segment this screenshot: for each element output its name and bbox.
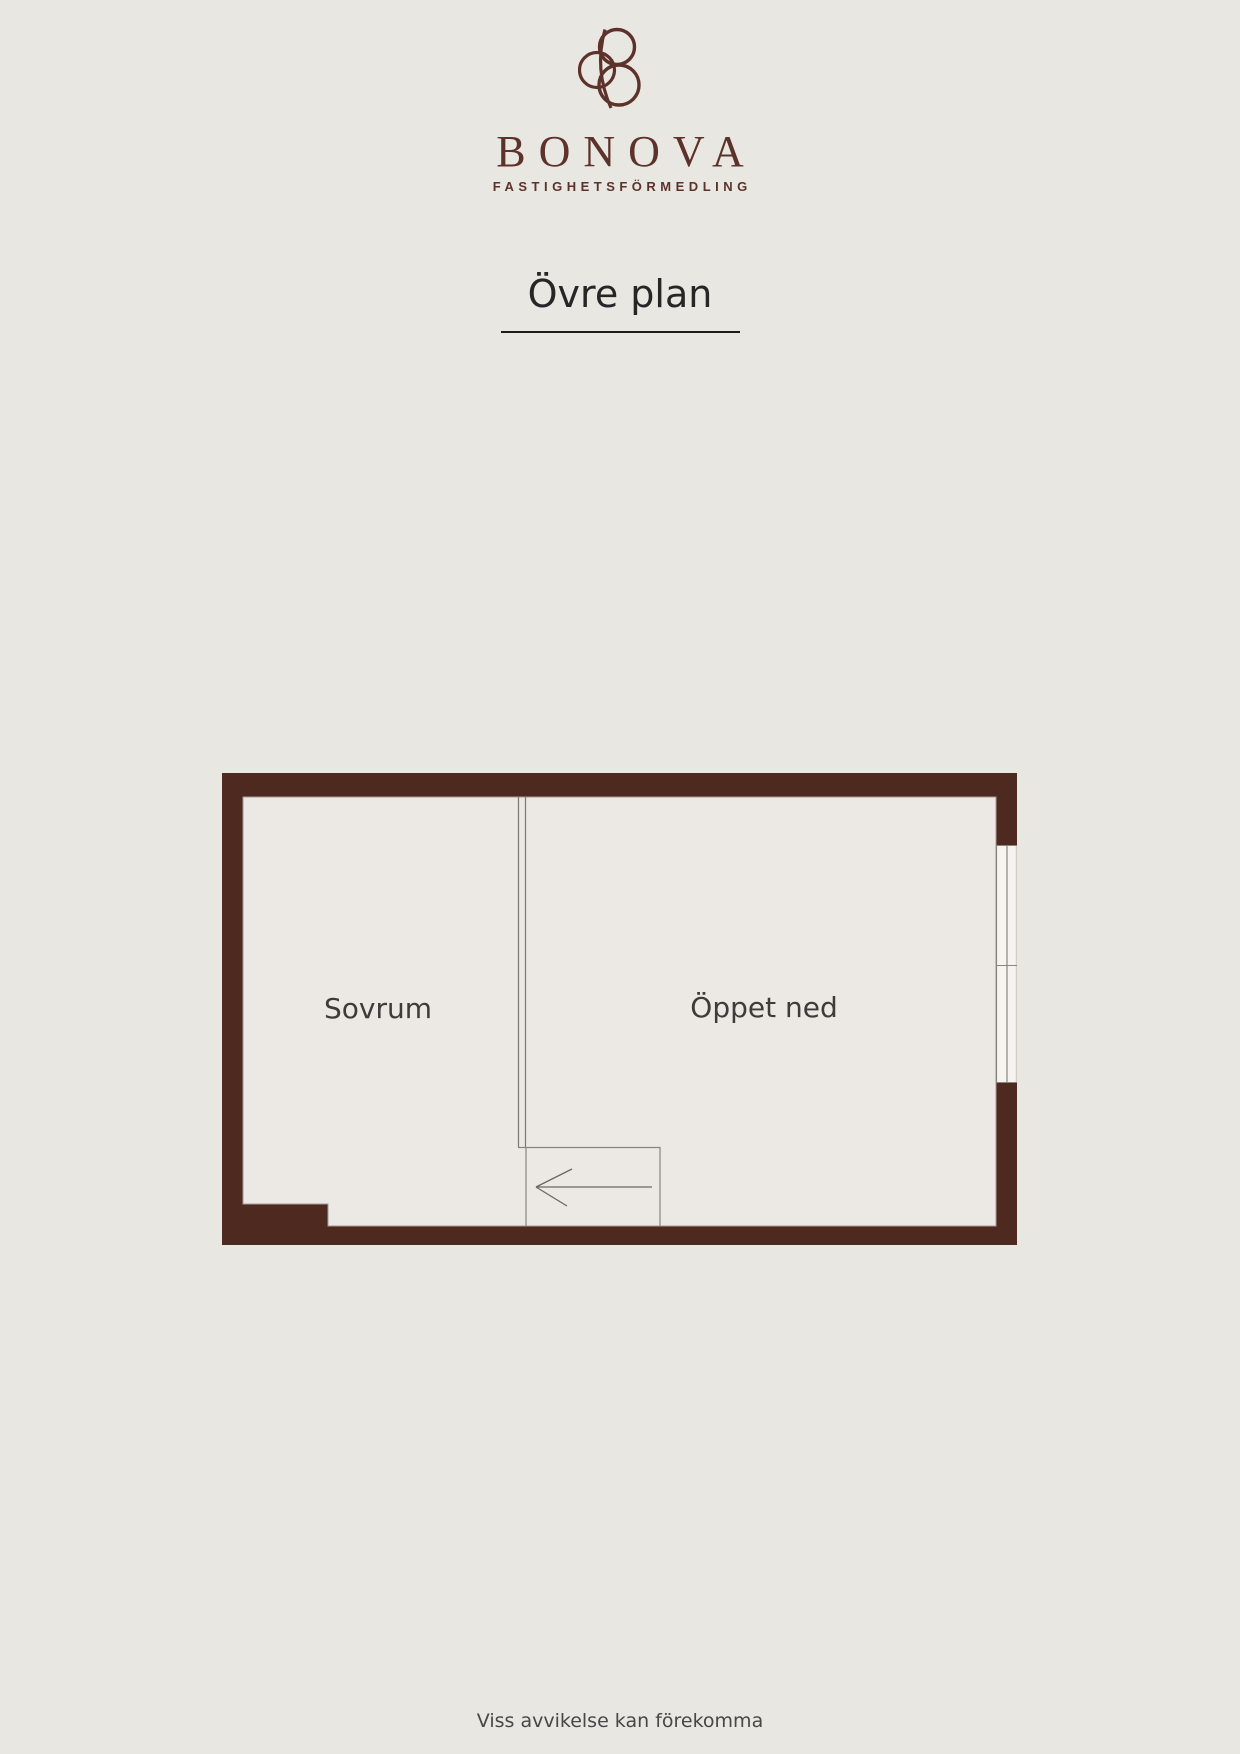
footer-disclaimer: Viss avvikelse kan förekomma (0, 1710, 1240, 1732)
bonova-monogram-icon (578, 26, 650, 112)
floorplan-drawing: Sovrum Öppet ned (222, 773, 1017, 1245)
right-wall-windows (996, 845, 1017, 1083)
brand-name: BONOVA (0, 126, 1240, 177)
floorplan-svg: Sovrum Öppet ned (222, 773, 1017, 1245)
brand-tagline: FASTIGHETSFÖRMEDLING (0, 179, 1240, 194)
room-label-sovrum: Sovrum (324, 992, 432, 1025)
floorplan-page: BONOVA FASTIGHETSFÖRMEDLING Övre plan (0, 0, 1240, 1754)
page-title: Övre plan (0, 272, 1240, 316)
title-underline (501, 331, 740, 333)
room-label-oppet-ned: Öppet ned (690, 990, 837, 1024)
